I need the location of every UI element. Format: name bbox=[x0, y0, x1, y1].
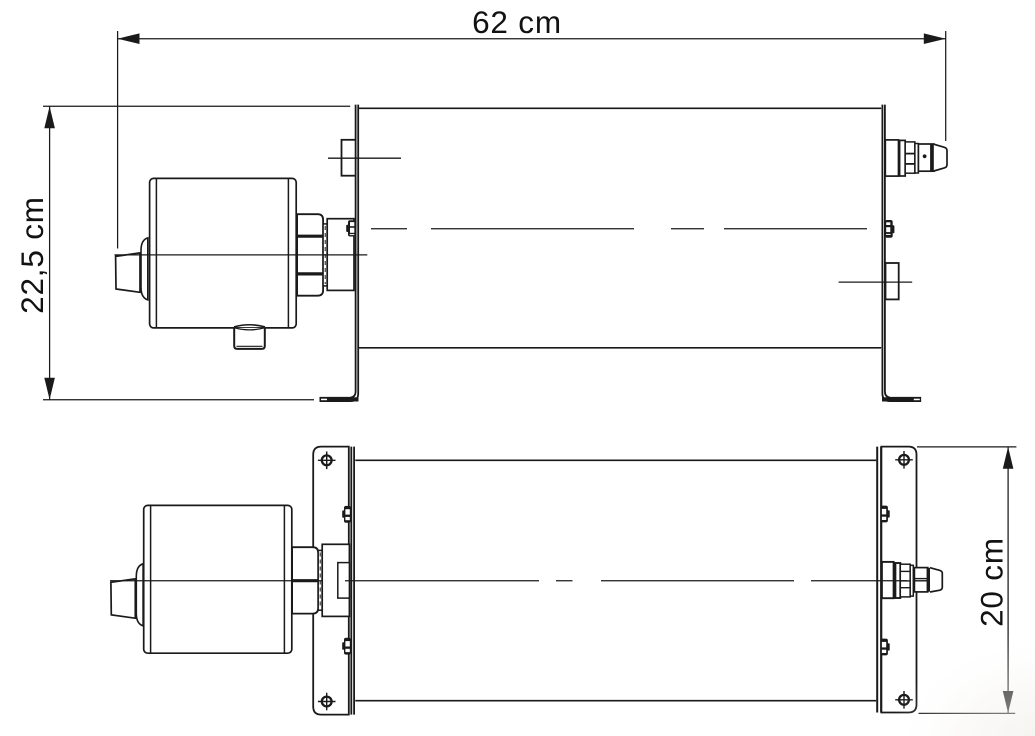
svg-text:62 cm: 62 cm bbox=[472, 4, 562, 40]
svg-text:22,5 cm: 22,5 cm bbox=[14, 196, 50, 314]
svg-text:20 cm: 20 cm bbox=[973, 537, 1009, 627]
